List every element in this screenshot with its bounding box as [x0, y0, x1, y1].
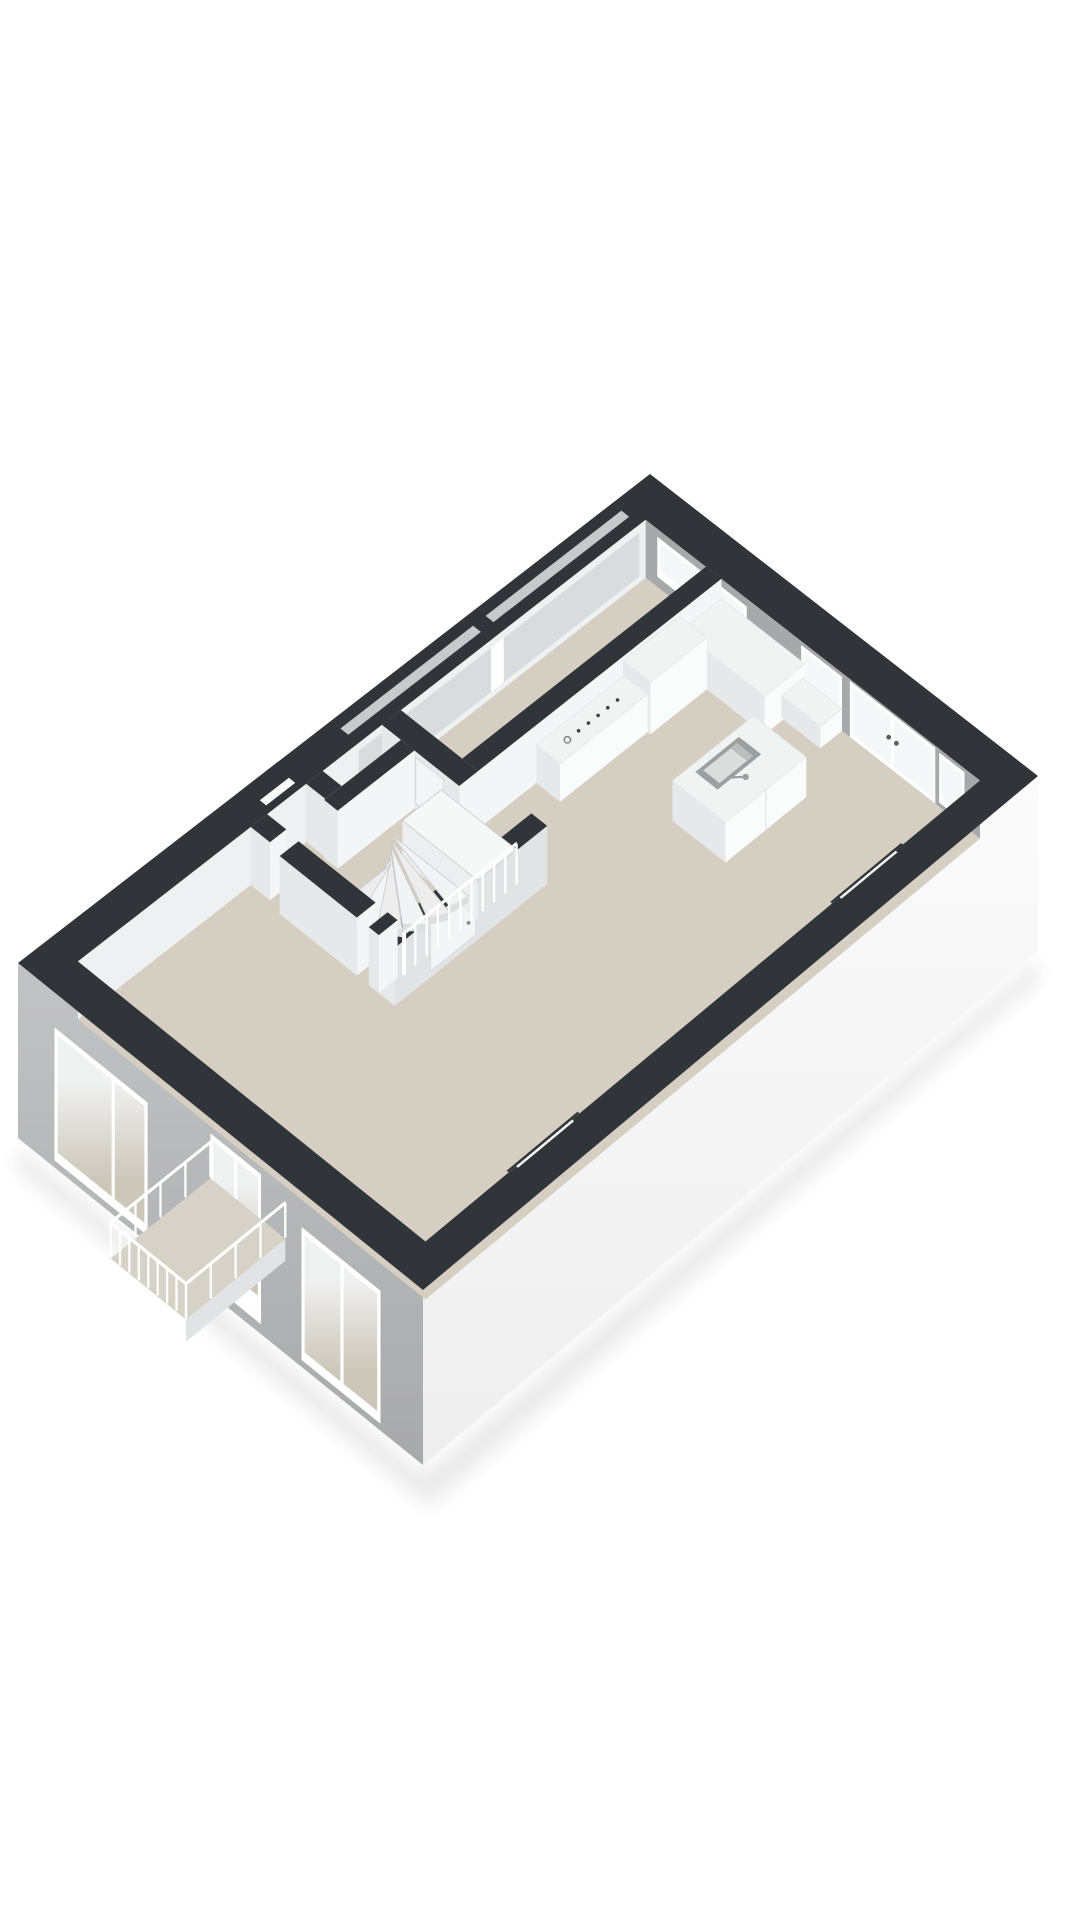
faucet-spout-icon — [731, 777, 746, 778]
floorplan-3d-canvas — [0, 0, 1080, 1920]
cooktop-knob-icon — [587, 721, 591, 725]
stairs-door-handle-icon — [467, 921, 471, 925]
cooktop-knob-icon — [577, 729, 581, 733]
floorplan-page — [0, 0, 1080, 1920]
cooktop-knob-icon — [596, 714, 600, 718]
wall-hall-living-post-face-sw — [369, 927, 379, 993]
ne-french-doors-handle-icon — [886, 735, 891, 740]
cooktop-knob-icon — [616, 698, 620, 702]
sw-window-a-mullion — [112, 1078, 115, 1206]
sw-window-b-mullion — [340, 1262, 343, 1390]
cooktop-knob-icon — [606, 706, 610, 710]
ne-french-doors-mullion — [891, 715, 894, 769]
wall-hall-sw-face-sw — [324, 800, 338, 869]
ne-french-doors-handle-icon — [894, 741, 899, 746]
